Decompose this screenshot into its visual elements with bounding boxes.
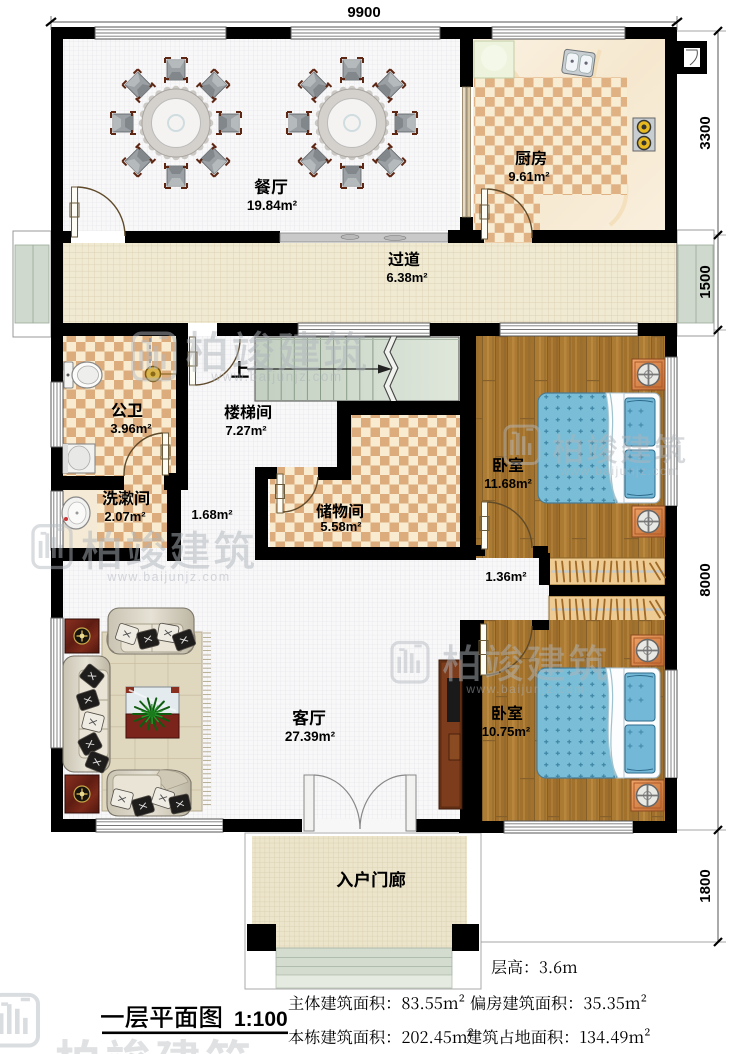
- svg-text:7.27m²: 7.27m²: [225, 423, 267, 438]
- svg-text:3.96m²: 3.96m²: [110, 421, 152, 436]
- svg-text:1.36m²: 1.36m²: [485, 569, 527, 584]
- svg-text:www.baijunjz.com: www.baijunjz.com: [210, 369, 342, 384]
- svg-text:1500: 1500: [697, 265, 714, 298]
- svg-text:1.68m²: 1.68m²: [191, 507, 233, 522]
- svg-text:9900: 9900: [347, 4, 380, 21]
- svg-text:27.39m²: 27.39m²: [285, 729, 336, 744]
- svg-text:6.38m²: 6.38m²: [386, 270, 428, 285]
- svg-text:1800: 1800: [697, 869, 714, 902]
- svg-text:www.baijunjz.com: www.baijunjz.com: [106, 570, 230, 584]
- svg-text:www.baijunjz.com: www.baijunjz.com: [465, 682, 585, 696]
- svg-text:19.84m²: 19.84m²: [247, 198, 298, 213]
- svg-text:3300: 3300: [697, 116, 714, 149]
- svg-text:9.61m²: 9.61m²: [508, 169, 550, 184]
- svg-text:8000: 8000: [697, 563, 714, 596]
- svg-text:5.58m²: 5.58m²: [320, 519, 362, 534]
- svg-text:10.75m²: 10.75m²: [482, 724, 531, 739]
- svg-text:11.68m²: 11.68m²: [484, 476, 532, 491]
- svg-text:www.baijunjz.com: www.baijunjz.com: [559, 464, 679, 478]
- svg-text:2.07m²: 2.07m²: [104, 509, 146, 524]
- svg-text:1:100: 1:100: [234, 1008, 288, 1031]
